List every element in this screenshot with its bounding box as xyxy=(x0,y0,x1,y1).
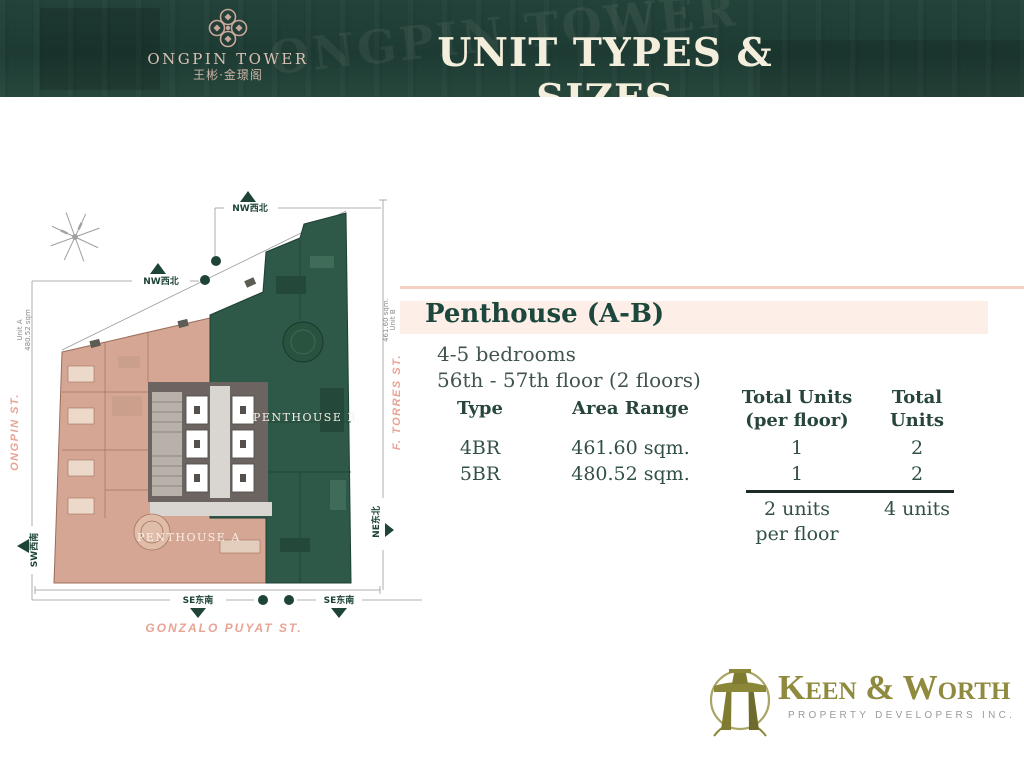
row-4br-area: 461.60 sqm. xyxy=(543,437,718,459)
keen-worth-tagline: PROPERTY DEVELOPERS INC. xyxy=(788,710,988,721)
dim-unit-b-name: Unit B xyxy=(389,309,397,330)
keen-worth-name: Keen & Worth xyxy=(778,668,994,708)
row-5br-area: 480.52 sqm. xyxy=(543,463,718,485)
totals-rule xyxy=(746,490,954,493)
penthouse-heading: Penthouse (A-B) xyxy=(425,299,845,329)
col-header-per-floor-1: Total Units xyxy=(738,387,856,408)
marker-ne: NE东北 xyxy=(370,506,382,538)
bedrooms-line: 4-5 bedrooms xyxy=(437,342,576,366)
keen-worth-logo-icon xyxy=(700,658,780,744)
street-torres: F. TORRES ST. xyxy=(391,354,403,450)
marker-se-right: SE东南 xyxy=(324,594,355,606)
brand-block: ONGPIN TOWER 王彬·金璟阁 xyxy=(128,5,328,83)
street-gonzalo: GONZALO PUYAT ST. xyxy=(145,621,302,635)
total-per-floor-line2: per floor xyxy=(738,523,856,545)
row-5br-type: 5BR xyxy=(430,463,530,485)
col-header-per-floor-2: (per floor) xyxy=(738,410,856,431)
floor-plan: PENTHOUSE A PENTHOUSE B NW西北 NW西北 SW西南 N… xyxy=(0,160,430,672)
col-header-total-1: Total xyxy=(868,387,966,408)
street-ongpin: ONGPIN ST. xyxy=(9,393,21,471)
page-title: UNIT TYPES & SIZES xyxy=(400,30,810,97)
floors-line: 56th - 57th floor (2 floors) xyxy=(437,368,701,392)
slide: { "header": { "brand_name": "ONGPIN TOWE… xyxy=(0,0,1024,768)
col-header-area: Area Range xyxy=(543,398,718,419)
brand-name: ONGPIN TOWER xyxy=(128,51,328,68)
core-block xyxy=(148,382,272,516)
row-4br-per-floor: 1 xyxy=(738,437,856,459)
brand-chinese-name: 王彬·金璟阁 xyxy=(128,68,328,83)
panel-top-rule xyxy=(400,286,1024,289)
col-header-type: Type xyxy=(430,398,530,419)
marker-nw-left: NW西北 xyxy=(143,275,178,287)
total-per-floor-line1: 2 units xyxy=(738,498,856,520)
header-banner: ONGPIN TOWER ONGPIN TOWER 王彬·金璟阁 UNIT TY… xyxy=(0,0,1024,97)
row-5br-per-floor: 1 xyxy=(738,463,856,485)
row-4br-total: 2 xyxy=(868,437,966,459)
marker-sw: SW西南 xyxy=(28,533,40,567)
dim-unit-a-area: 480.52 sqm xyxy=(24,309,32,351)
row-5br-total: 2 xyxy=(868,463,966,485)
col-header-total-2: Units xyxy=(868,410,966,431)
penthouse-a-label: PENTHOUSE A xyxy=(137,531,241,544)
ongpin-tower-emblem-icon xyxy=(205,5,251,51)
compass-rose-icon xyxy=(42,204,109,271)
row-4br-type: 4BR xyxy=(430,437,530,459)
marker-se-left: SE东南 xyxy=(183,594,214,606)
dim-unit-a-name: Unit A xyxy=(16,319,24,340)
total-units-value: 4 units xyxy=(868,498,966,520)
marker-nw-top: NW西北 xyxy=(232,202,267,214)
penthouse-b-label: PENTHOUSE B xyxy=(253,411,357,424)
